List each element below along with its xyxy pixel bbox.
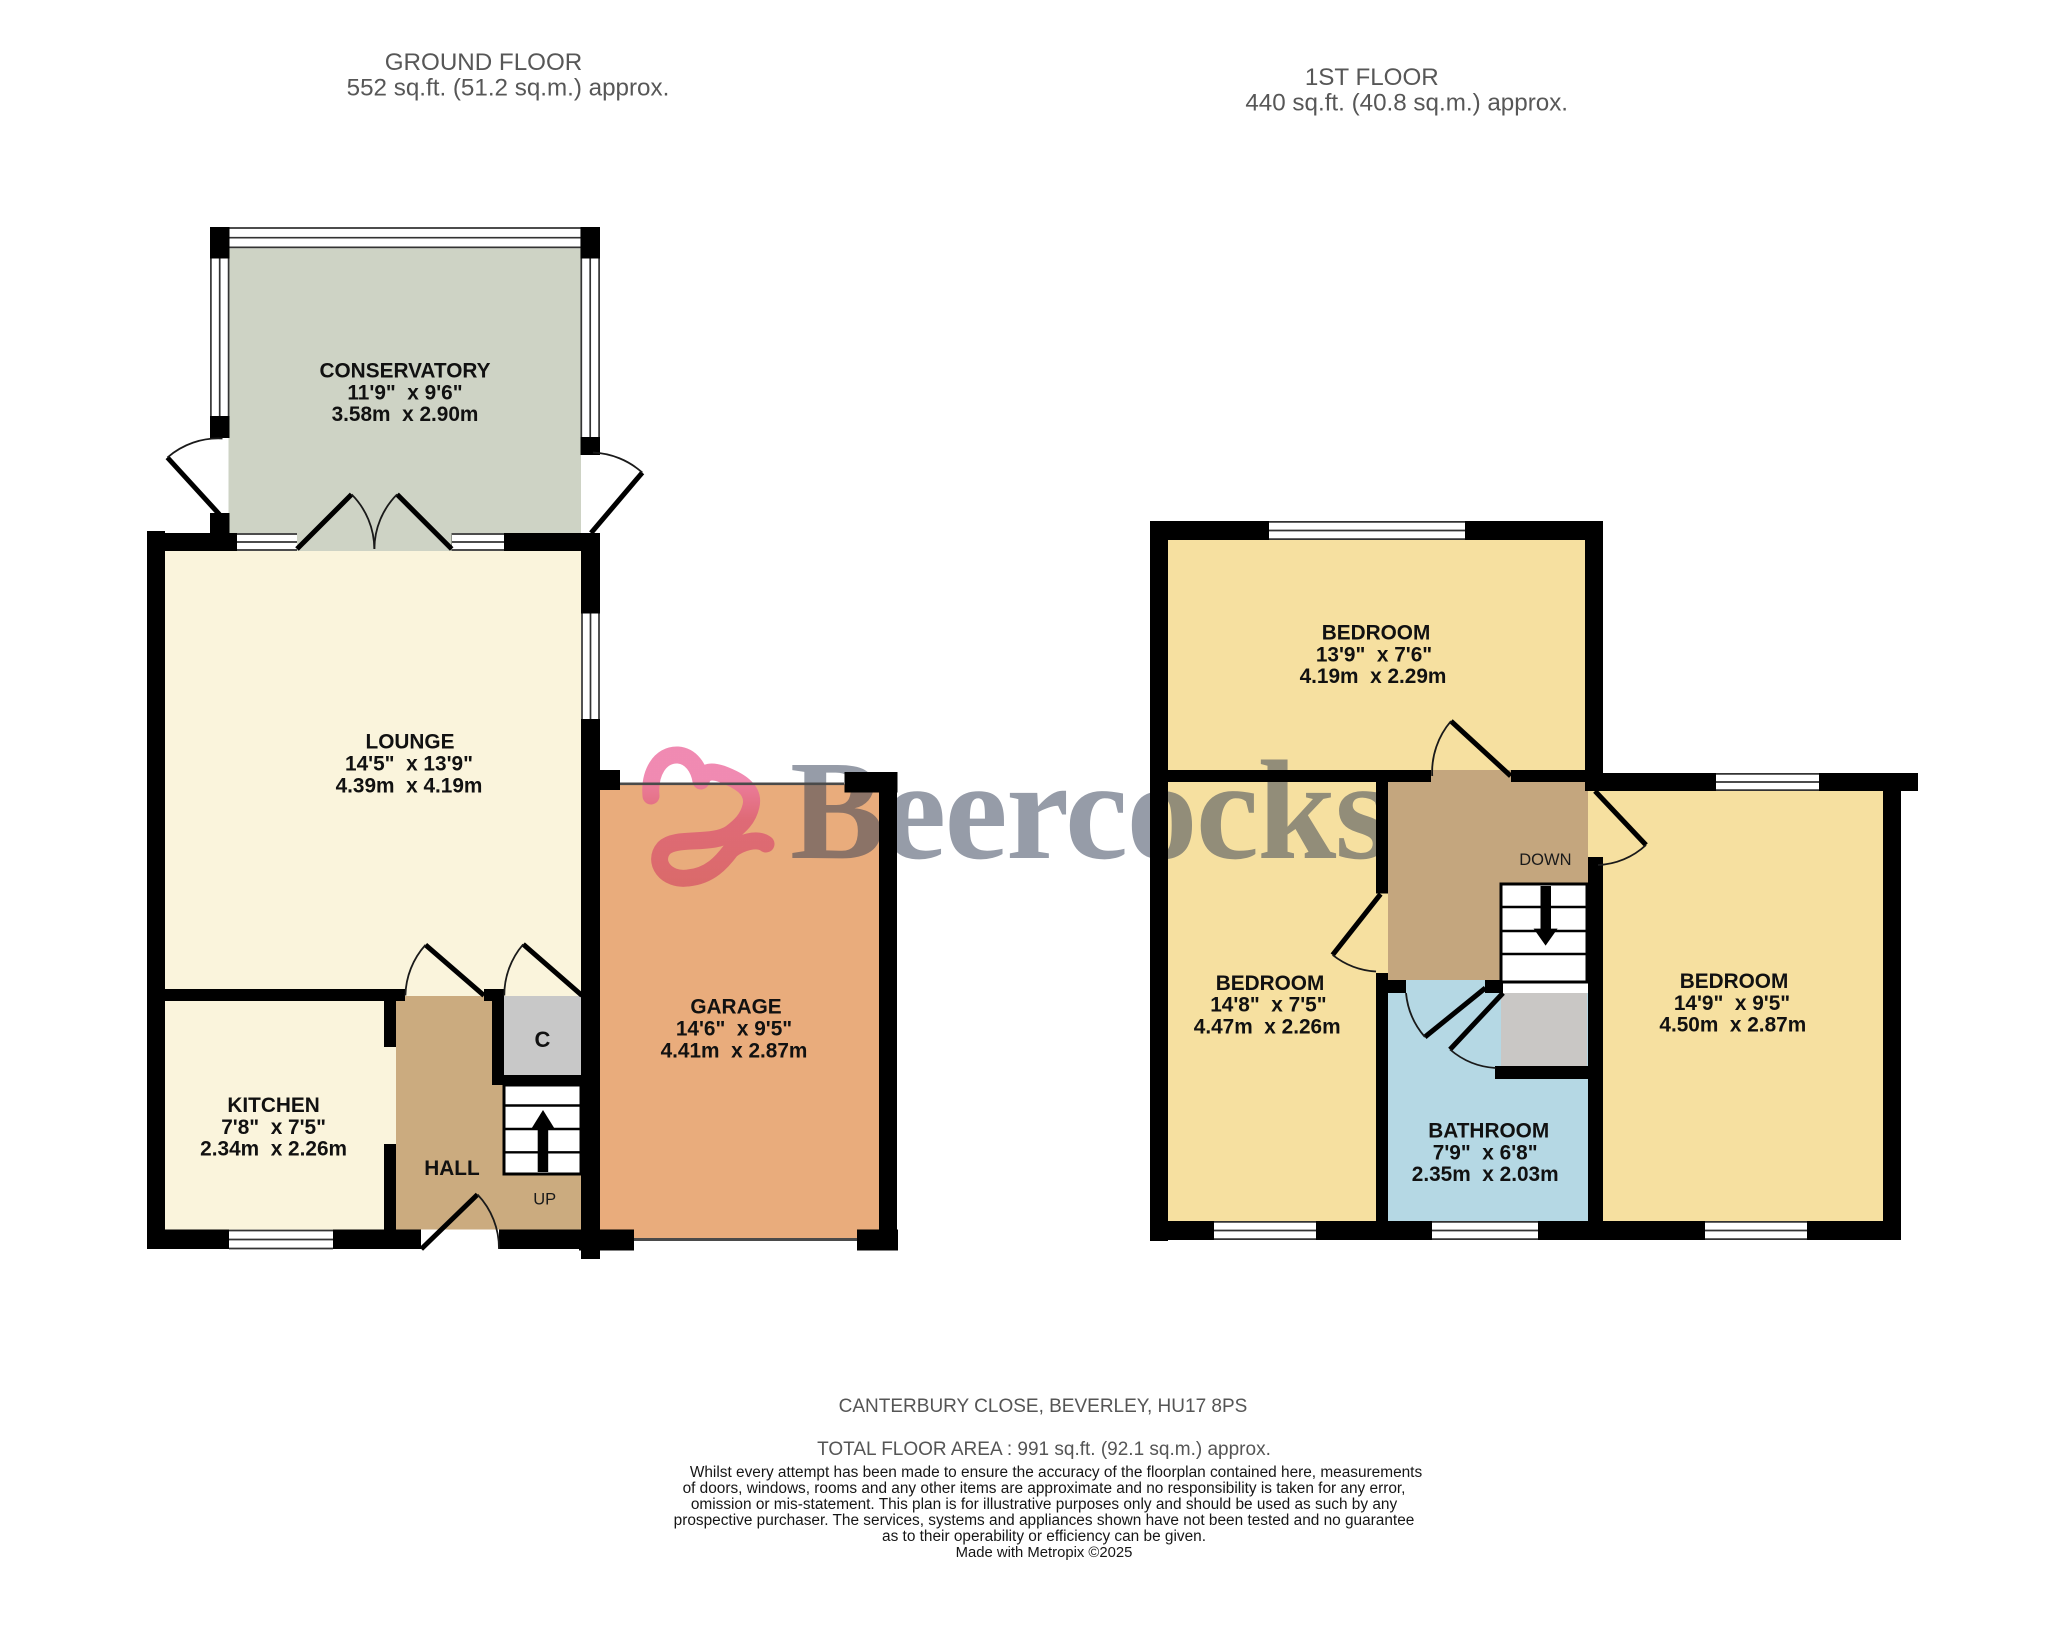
svg-text:TOTAL FLOOR AREA : 991 sq.ft.: TOTAL FLOOR AREA : 991 sq.ft. (92.1 sq.m… (817, 1439, 1271, 1460)
svg-text:UP: UP (533, 1191, 556, 1209)
svg-text:4.50m x 2.87m: 4.50m x 2.87m (1659, 1014, 1806, 1037)
svg-text:2.34m x 2.26m: 2.34m x 2.26m (200, 1138, 347, 1161)
svg-text:CONSERVATORY: CONSERVATORY (319, 360, 490, 383)
svg-text:GROUND FLOOR: GROUND FLOOR (385, 49, 583, 76)
svg-text:LOUNGE: LOUNGE (366, 731, 455, 754)
svg-text:14'8" x 7'5": 14'8" x 7'5" (1210, 994, 1326, 1017)
svg-text:2.35m x 2.03m: 2.35m x 2.03m (1412, 1163, 1559, 1186)
svg-text:14'6" x 9'5": 14'6" x 9'5" (676, 1018, 792, 1041)
svg-text:14'9" x 9'5": 14'9" x 9'5" (1674, 992, 1790, 1015)
svg-text:13'9" x 7'6": 13'9" x 7'6" (1316, 643, 1432, 666)
svg-text:C: C (534, 1027, 550, 1052)
svg-text:BEDROOM: BEDROOM (1680, 970, 1789, 993)
svg-text:BATHROOM: BATHROOM (1428, 1120, 1549, 1143)
svg-text:CANTERBURY CLOSE, BEVERLEY, HU: CANTERBURY CLOSE, BEVERLEY, HU17 8PS (839, 1396, 1248, 1417)
svg-text:Made with Metropix ©2025: Made with Metropix ©2025 (956, 1545, 1133, 1561)
svg-text:11'9" x 9'6": 11'9" x 9'6" (347, 381, 462, 404)
svg-text:GARAGE: GARAGE (690, 996, 781, 1019)
svg-text:14'5" x 13'9": 14'5" x 13'9" (345, 753, 473, 776)
svg-text:4.19m x 2.29m: 4.19m x 2.29m (1300, 665, 1447, 688)
svg-text:BEDROOM: BEDROOM (1216, 972, 1325, 995)
svg-text:7'8" x 7'5": 7'8" x 7'5" (221, 1116, 326, 1139)
svg-text:3.58m x 2.90m: 3.58m x 2.90m (332, 403, 479, 426)
svg-text:prospective purchaser. The ser: prospective purchaser. The services, sys… (674, 1512, 1415, 1529)
svg-text:552 sq.ft. (51.2 sq.m.) approx: 552 sq.ft. (51.2 sq.m.) approx. (347, 75, 670, 102)
svg-text:DOWN: DOWN (1519, 851, 1571, 869)
svg-text:of doors, windows, rooms and a: of doors, windows, rooms and any other i… (683, 1480, 1406, 1497)
svg-text:as to their operability or eff: as to their operability or efficiency ca… (882, 1528, 1206, 1545)
svg-text:4.39m x 4.19m: 4.39m x 4.19m (336, 774, 483, 797)
svg-text:omission or mis-statement. Thi: omission or mis-statement. This plan is … (691, 1496, 1398, 1513)
svg-text:Whilst every attempt has been: Whilst every attempt has been made to en… (690, 1464, 1423, 1481)
svg-text:4.47m x 2.26m: 4.47m x 2.26m (1194, 1016, 1341, 1039)
svg-text:KITCHEN: KITCHEN (227, 1094, 319, 1117)
svg-text:4.41m x 2.87m: 4.41m x 2.87m (661, 1039, 808, 1062)
svg-text:440 sq.ft. (40.8 sq.m.) approx: 440 sq.ft. (40.8 sq.m.) approx. (1245, 90, 1568, 117)
svg-text:BEDROOM: BEDROOM (1322, 622, 1431, 645)
svg-text:7'9" x 6'8": 7'9" x 6'8" (1433, 1141, 1538, 1164)
svg-text:1ST FLOOR: 1ST FLOOR (1305, 64, 1439, 91)
svg-text:HALL: HALL (424, 1157, 480, 1180)
